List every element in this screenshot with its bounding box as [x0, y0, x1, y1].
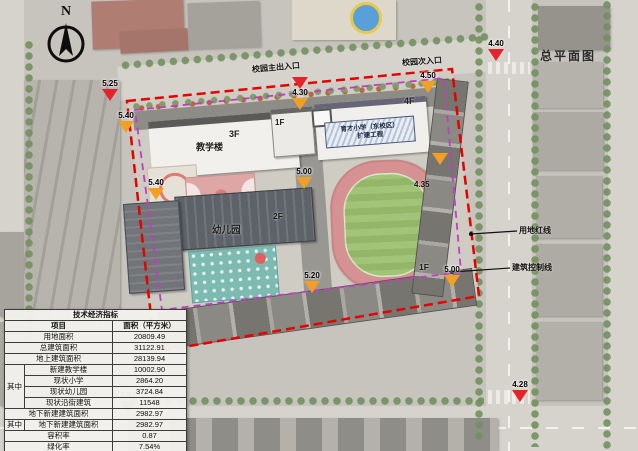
tree-row [602, 0, 612, 451]
marker-triangle-icon [296, 177, 312, 189]
elevation-marker [432, 152, 448, 165]
marker-triangle-icon [118, 121, 134, 133]
col-header-area: 面积（平方米） [113, 321, 187, 332]
elevation-marker: 4.28 [512, 381, 528, 402]
table-row: 容积率 0.87 [5, 431, 187, 442]
existing-school-building [123, 200, 185, 294]
main-floors-label: 4F [404, 96, 415, 106]
control-line-legend-label: 建筑控制线 [512, 262, 552, 273]
city-block [533, 112, 603, 170]
marker-triangle-icon [292, 98, 308, 110]
compass-icon [44, 20, 88, 64]
marker-triangle-icon [432, 153, 448, 165]
city-block [536, 322, 602, 400]
table-row: 其中 地下新建建筑面积 2982.97 [5, 420, 187, 431]
main-building-name-line2: 扩建工程 [357, 131, 384, 141]
north-arrow: N [44, 4, 88, 69]
elevation-marker: 5.20 [304, 272, 320, 293]
city-block [187, 1, 261, 49]
kindergarten-floors-label: 2F [273, 211, 283, 221]
city-block [536, 244, 602, 316]
table-row: 总建筑面积 31122.91 [5, 343, 187, 354]
among-cell: 其中 [5, 420, 25, 431]
kindergarten-building [174, 187, 315, 250]
playground-block [292, 0, 396, 40]
elevation-marker: 5.40 [118, 112, 134, 133]
city-block-redroof [119, 28, 188, 54]
playground-sun-deco [254, 252, 266, 264]
parking-block [24, 80, 120, 330]
marker-triangle-icon [304, 281, 320, 293]
kindergarten-playground [188, 245, 280, 304]
table-row: 地下新建建筑面积 2982.97 [5, 409, 187, 420]
marker-triangle-icon [148, 188, 164, 200]
crosswalk [488, 62, 530, 74]
table-title: 技术经济指标 [5, 310, 187, 321]
red-line-legend-label: 用地红线 [519, 225, 551, 236]
marker-triangle-icon [102, 89, 118, 101]
col-header-item: 项目 [5, 321, 113, 332]
among-cell: 其中 [5, 365, 25, 409]
elevation-marker: 4.35 [414, 180, 430, 189]
city-block [533, 62, 603, 108]
table-row: 其中 新建教学楼 10002.90 [5, 365, 187, 376]
north-letter: N [44, 4, 88, 20]
marker-triangle-icon [420, 81, 436, 93]
marker-triangle-icon [512, 390, 528, 402]
marker-triangle-icon [488, 49, 504, 61]
indicator-table: 技术经济指标 项目 面积（平方米） 用地面积 20809.49 总建筑面积 31… [4, 309, 187, 451]
table-row: 绿化率 7.54% [5, 442, 187, 451]
elevation-marker: 4.40 [488, 40, 504, 61]
tree-row [474, 2, 486, 442]
table-row: 用地面积 20809.49 [5, 332, 187, 343]
teaching-building-label: 教学楼 [196, 140, 223, 153]
playground-circle [350, 2, 382, 34]
annex-building [270, 106, 316, 157]
elevation-marker: 5.00 [444, 266, 460, 287]
table-row: 地上建筑面积 28139.94 [5, 354, 187, 365]
elevation-marker: 5.00 [296, 168, 312, 189]
site-plan-sheet: 育才小学（东校区） 扩建工程 教学楼 3F 1F 4F 幼儿园 2F 1F 校园… [0, 0, 638, 451]
elevation-marker: 5.40 [148, 179, 164, 200]
table-row: 现状小学 2864.20 [5, 376, 187, 387]
table-row: 现状沿街建筑 11548 [5, 398, 187, 409]
road-far-right [608, 0, 638, 451]
table-row: 现状幼儿园 3724.84 [5, 387, 187, 398]
street-building-floors-label: 1F [419, 262, 429, 272]
elevation-marker: 5.25 [102, 80, 118, 101]
teaching-floors-label: 3F [229, 129, 240, 139]
leader-dot [469, 232, 473, 236]
sheet-title: 总平面图 [540, 47, 596, 64]
marker-triangle-icon [444, 275, 460, 287]
city-block [538, 6, 610, 50]
annex-floors-label: 1F [275, 118, 284, 127]
kindergarten-label: 幼儿园 [212, 222, 241, 236]
elevation-marker: 4.50 [420, 72, 436, 93]
elevation-marker-main-entrance: 4.30 [292, 76, 308, 110]
